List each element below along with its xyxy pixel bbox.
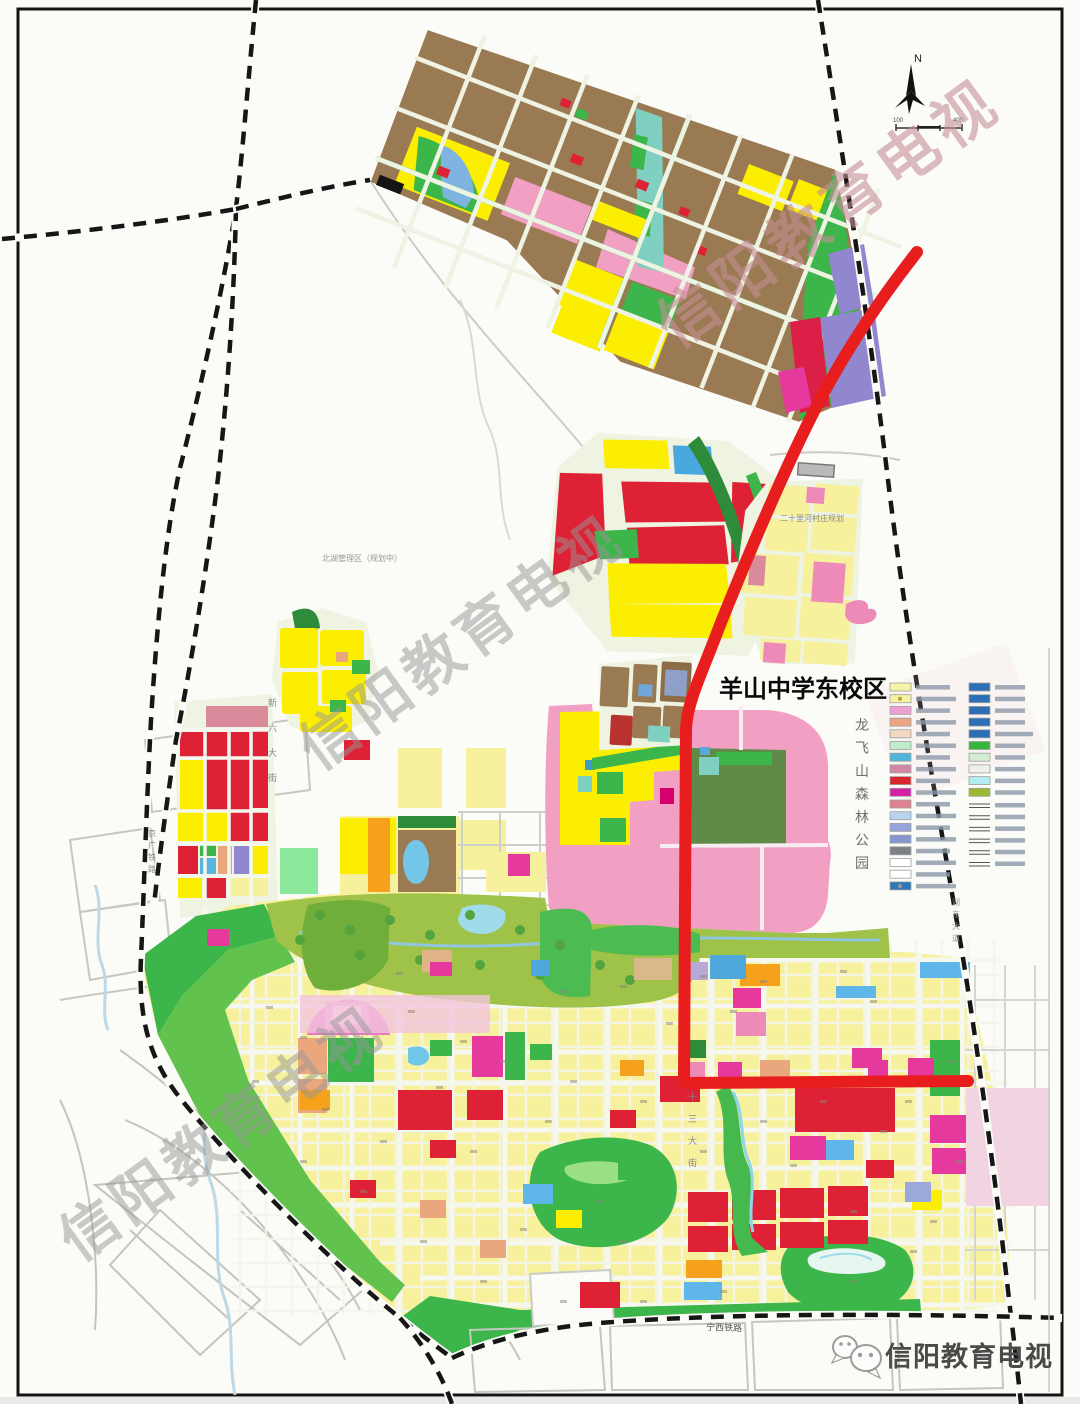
svg-text:信阳教育电视: 信阳教育电视: [885, 1341, 1053, 1372]
svg-text:公: 公: [855, 832, 869, 848]
svg-text:京: 京: [148, 828, 156, 838]
svg-text:新: 新: [268, 697, 277, 708]
svg-text:大: 大: [688, 1135, 697, 1146]
svg-text:湖: 湖: [952, 898, 960, 907]
svg-text:广: 广: [148, 840, 156, 850]
svg-text:二十里河村庄规划: 二十里河村庄规划: [780, 513, 844, 523]
svg-text:林: 林: [855, 809, 869, 825]
svg-text:东: 东: [952, 909, 960, 919]
svg-text:路: 路: [148, 864, 156, 874]
svg-text:园: 园: [855, 855, 869, 871]
svg-text:龙: 龙: [855, 717, 869, 733]
svg-text:羊山中学东校区: 羊山中学东校区: [719, 675, 887, 703]
svg-text:北湖管理区（规划中）: 北湖管理区（规划中）: [322, 553, 402, 563]
svg-text:街: 街: [688, 1157, 697, 1168]
svg-text:道: 道: [952, 933, 960, 943]
svg-text:大: 大: [268, 747, 277, 758]
svg-text:森: 森: [855, 786, 869, 802]
svg-text:大: 大: [952, 921, 960, 931]
svg-text:六: 六: [268, 722, 277, 733]
svg-text:山: 山: [855, 763, 869, 779]
svg-text:三: 三: [688, 1114, 697, 1124]
svg-text:铁: 铁: [148, 852, 156, 862]
svg-text:飞: 飞: [855, 740, 869, 756]
svg-text:N: N: [914, 53, 922, 65]
svg-text:十: 十: [688, 1091, 697, 1102]
svg-text:街: 街: [268, 772, 277, 783]
svg-text:宁西铁路: 宁西铁路: [706, 1321, 742, 1333]
